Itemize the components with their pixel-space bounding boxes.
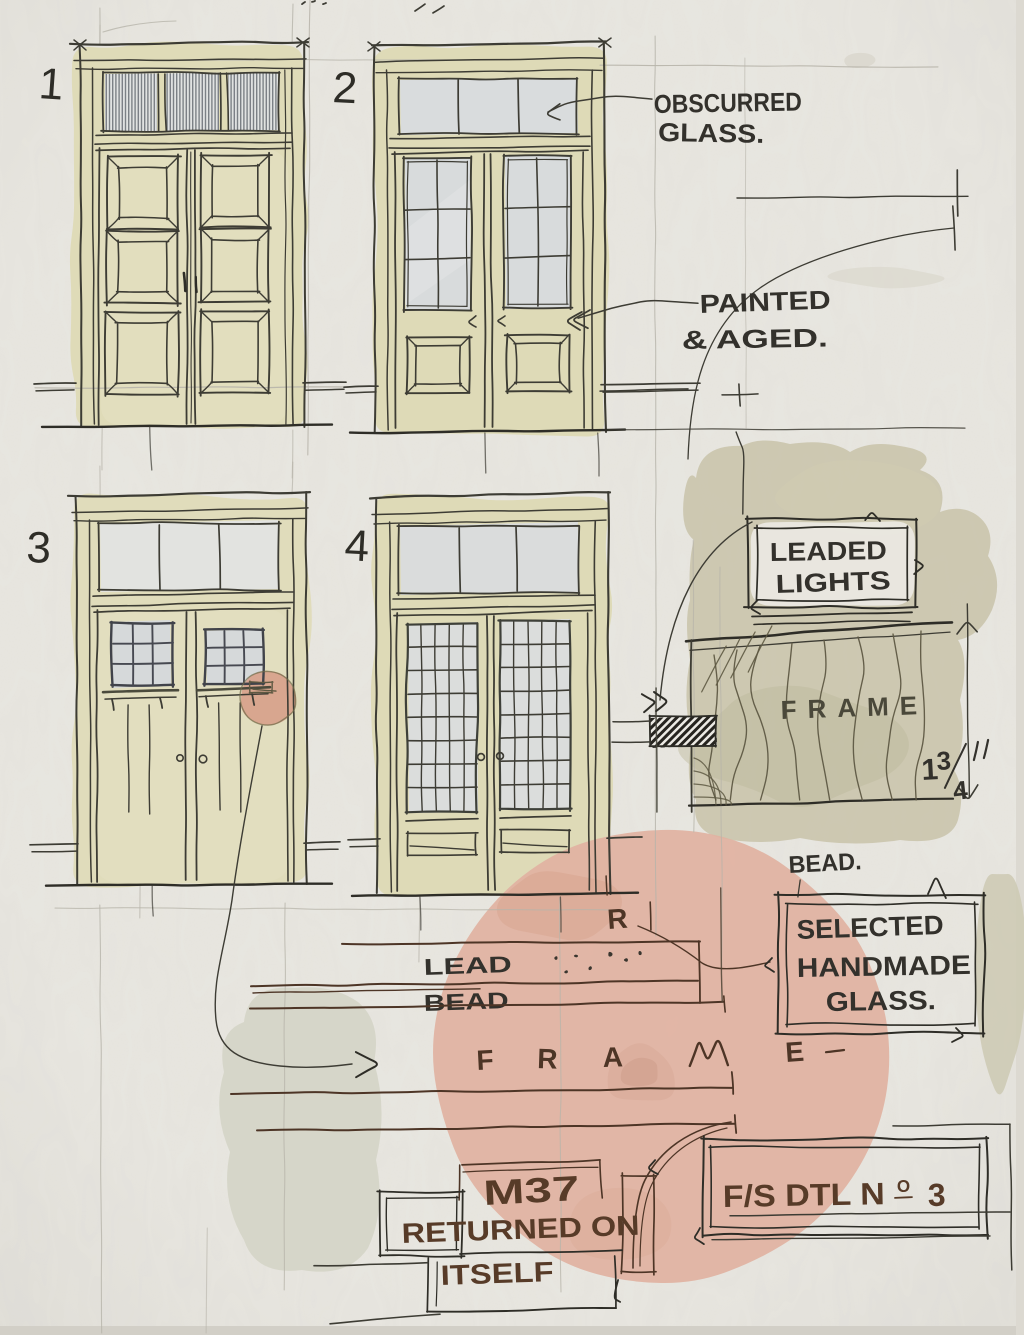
svg-text:R: R [606, 903, 629, 935]
svg-text:BEAD: BEAD [423, 987, 509, 1016]
svg-text:LEAD: LEAD [423, 951, 512, 980]
svg-text:BEAD.: BEAD. [788, 848, 862, 879]
svg-text:4: 4 [951, 775, 970, 806]
svg-text:E: E [784, 1036, 806, 1068]
svg-text:GLASS.: GLASS. [658, 117, 765, 149]
svg-text:LIGHTS: LIGHTS [775, 565, 891, 599]
svg-text:A: A [602, 1041, 624, 1073]
svg-text:R: R [537, 1043, 559, 1075]
svg-text:PAINTED: PAINTED [699, 284, 831, 319]
svg-text:LEADED: LEADED [770, 535, 888, 567]
svg-text:ITSELF: ITSELF [440, 1256, 554, 1291]
svg-text:& AGED.: & AGED. [682, 322, 829, 355]
svg-text:3: 3 [26, 523, 53, 573]
svg-text:3: 3 [927, 1177, 946, 1213]
svg-text:F: F [476, 1044, 496, 1076]
svg-text:HANDMADE: HANDMADE [797, 950, 971, 983]
svg-text:4: 4 [343, 521, 371, 571]
svg-text:F/S DTL N: F/S DTL N [723, 1176, 886, 1214]
svg-text:GLASS.: GLASS. [826, 985, 937, 1017]
svg-text:FRAME: FRAME [780, 690, 928, 725]
svg-text:M37: M37 [482, 1169, 580, 1213]
svg-text:SELECTED: SELECTED [796, 910, 944, 945]
svg-text:O: O [897, 1177, 912, 1196]
svg-text:2: 2 [331, 63, 359, 113]
svg-text:1: 1 [37, 59, 66, 110]
svg-text:3: 3 [936, 745, 953, 776]
svg-text:OBSCURRED: OBSCURRED [654, 86, 803, 119]
